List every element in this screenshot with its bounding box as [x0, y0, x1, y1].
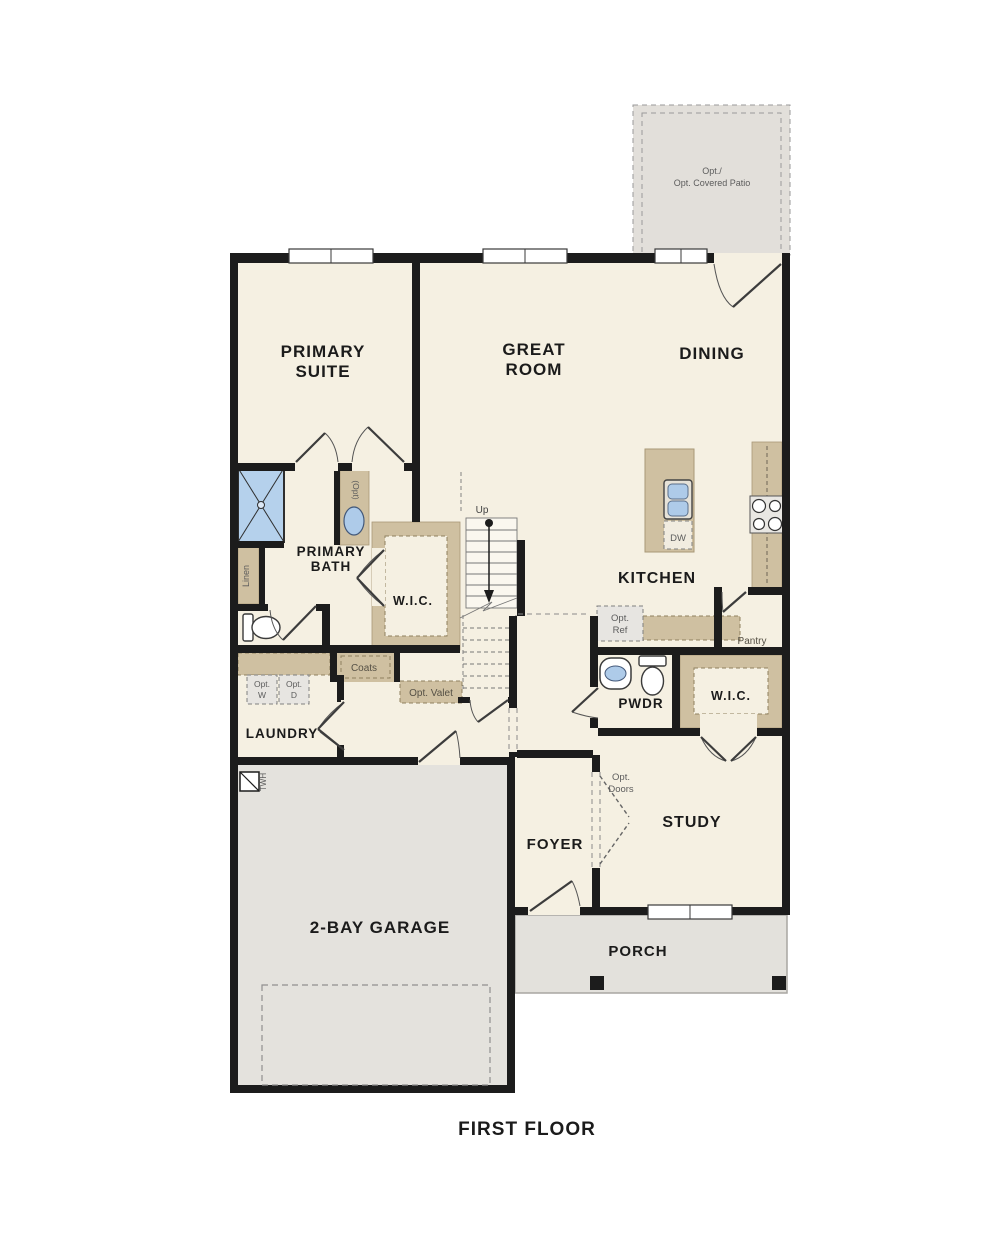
- powder-sink: [600, 658, 631, 689]
- svg-text:W: W: [258, 690, 266, 700]
- porch-label: PORCH: [608, 943, 667, 960]
- pwdr-label: PWDR: [618, 696, 663, 711]
- svg-text:Opt.: Opt.: [254, 679, 270, 689]
- laundry-counter: [238, 653, 330, 675]
- opt-doors-label: Opt.: [612, 772, 630, 783]
- primary-suite-window: [289, 249, 373, 263]
- great-room-label: GREAT: [502, 340, 565, 359]
- patio-label: Opt./: [702, 166, 722, 176]
- island-sink: [664, 480, 692, 519]
- porch-post-right: [772, 976, 786, 990]
- page-title: FIRST FLOOR: [458, 1119, 596, 1140]
- garage-label: 2-BAY GARAGE: [310, 918, 450, 937]
- opt-valet-label: Opt. Valet: [409, 688, 453, 699]
- kitchen-label: KITCHEN: [618, 570, 696, 587]
- cooktop: [750, 496, 783, 533]
- dining-label: DINING: [679, 344, 745, 363]
- coats-label: Coats: [351, 663, 377, 674]
- shower: [238, 468, 284, 542]
- svg-text:D: D: [291, 690, 297, 700]
- dishwasher: DW: [664, 521, 692, 549]
- svg-text:Opt.: Opt.: [611, 613, 629, 624]
- optional-covered-patio: Opt./ Opt. Covered Patio: [633, 105, 790, 255]
- laundry-label: LAUNDRY: [246, 726, 319, 741]
- great-room-label2: ROOM: [506, 360, 563, 379]
- opt-vanity-label: (Opt): [351, 480, 361, 500]
- floorplan-drawing: Opt./ Opt. Covered Patio: [0, 0, 1000, 1239]
- pantry-label: Pantry: [738, 636, 767, 647]
- dining-window: [655, 249, 707, 263]
- study-window: [648, 905, 732, 919]
- vanity-sink: [344, 507, 364, 535]
- porch-post-left: [590, 976, 604, 990]
- study-label: STUDY: [662, 814, 721, 831]
- opt-doors-label2: Doors: [608, 784, 634, 795]
- tankless-water-heater: TWH: [240, 772, 268, 791]
- svg-text:Ref: Ref: [613, 625, 628, 636]
- primary-suite-label2: SUITE: [295, 362, 350, 381]
- primary-bath-label: PRIMARY: [297, 544, 366, 559]
- patio-label2: Opt. Covered Patio: [674, 178, 751, 188]
- wic-study-label: W.I.C.: [711, 689, 751, 703]
- powder-toilet: [639, 656, 666, 695]
- primary-suite-label: PRIMARY: [281, 342, 366, 361]
- svg-text:Opt.: Opt.: [286, 679, 302, 689]
- foyer-label: FOYER: [527, 836, 584, 853]
- floorplan-page: Opt./ Opt. Covered Patio: [0, 0, 1000, 1239]
- great-room-window: [483, 249, 567, 263]
- linen-label: Linen: [241, 565, 251, 587]
- twh-label: TWH: [259, 773, 268, 791]
- wic-primary-label: W.I.C.: [393, 594, 433, 608]
- primary-bath-label2: BATH: [311, 559, 352, 574]
- kitchen-counter-bottom: [643, 616, 740, 640]
- up-label: Up: [476, 505, 489, 516]
- svg-text:DW: DW: [670, 533, 686, 544]
